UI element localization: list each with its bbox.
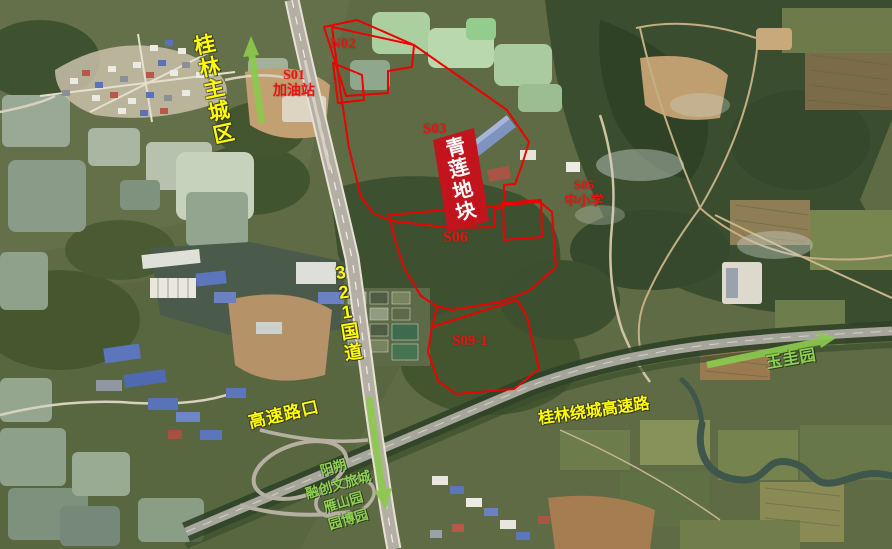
parcel-label-s03: S03: [423, 121, 446, 138]
parcel-name: 中小学: [552, 193, 616, 209]
satellite-map: 青 莲 地 块 桂 林 主 城 区 S01 加油站 N02 S03 S05 中小…: [0, 0, 892, 549]
parcel-boundary-connector: [432, 307, 437, 327]
parcel-label-s06: S06: [443, 229, 468, 247]
project-label-box: 青 莲 地 块: [433, 128, 489, 233]
city-direction-char: 区: [211, 122, 236, 149]
parcel-outline-s06-inner: [503, 200, 542, 240]
road-321-char: 2: [337, 282, 350, 303]
parcel-label-s09-1: S09-1: [452, 333, 488, 350]
parcel-label-n02: N02: [330, 36, 356, 53]
road-321-char: 3: [334, 262, 347, 283]
annotation-overlay: 青 莲 地 块: [0, 0, 892, 549]
parcel-label-s05: S05 中小学: [552, 177, 616, 208]
parcel-code: S01: [258, 68, 330, 84]
road-321-char: 1: [340, 302, 353, 323]
parcel-label-s01: S01 加油站: [258, 68, 330, 100]
parcel-code: S05: [552, 177, 616, 193]
parcel-outline-n02: [324, 20, 414, 96]
road-321-char: 道: [343, 341, 364, 364]
parcel-name: 加油站: [258, 84, 330, 100]
